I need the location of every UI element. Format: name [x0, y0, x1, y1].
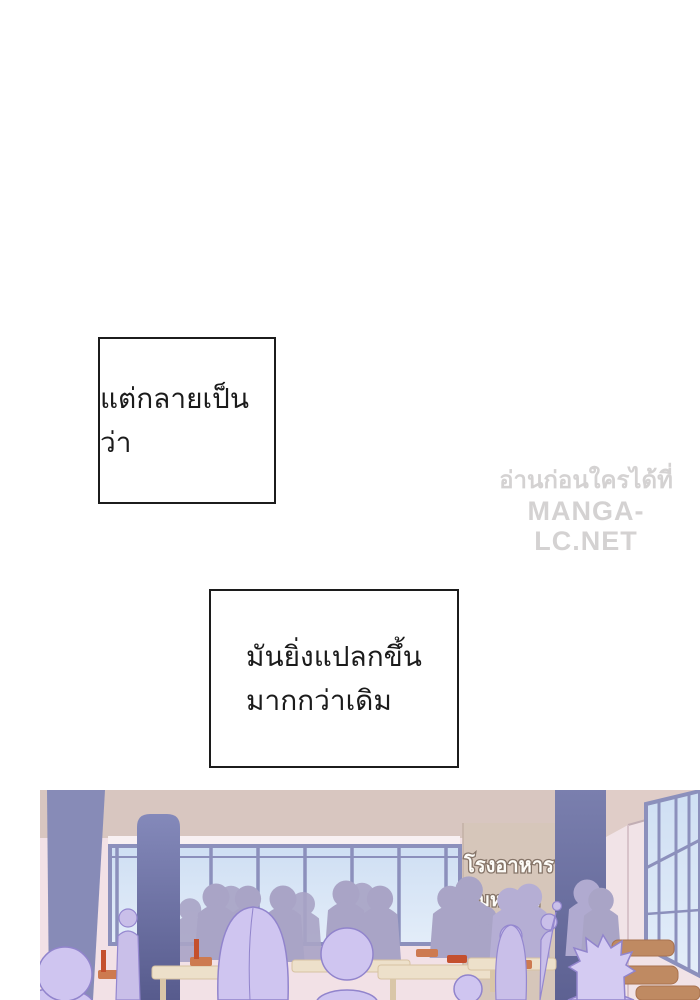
foreground-head-small [454, 975, 482, 1000]
narration-text-2-line2: มากกว่าเดิม [246, 679, 422, 722]
cafeteria-panel: โรงอาหาร มหา'ลัย [40, 790, 700, 1000]
narration-box-1: แต่กลายเป็นว่า [98, 337, 276, 504]
watermark-line-thai: อ่านก่อนใครได้ที่ [478, 466, 694, 496]
narration-text-2-line1: มันยิ่งแปลกขึ้น [246, 635, 422, 678]
watermark-line-site: MANGA-LC.NET [478, 496, 694, 556]
cafeteria-scene: โรงอาหาร มหา'ลัย [40, 790, 700, 1000]
narration-text-1: แต่กลายเป็นว่า [100, 377, 274, 465]
sign-text-line1: โรงอาหาร [463, 853, 554, 877]
foreground-head-center [321, 928, 373, 980]
site-watermark: อ่านก่อนใครได้ที่ MANGA-LC.NET [478, 466, 694, 556]
narration-box-2: มันยิ่งแปลกขึ้น มากกว่าเดิม [209, 589, 459, 768]
foreground-head-left [40, 947, 92, 1000]
